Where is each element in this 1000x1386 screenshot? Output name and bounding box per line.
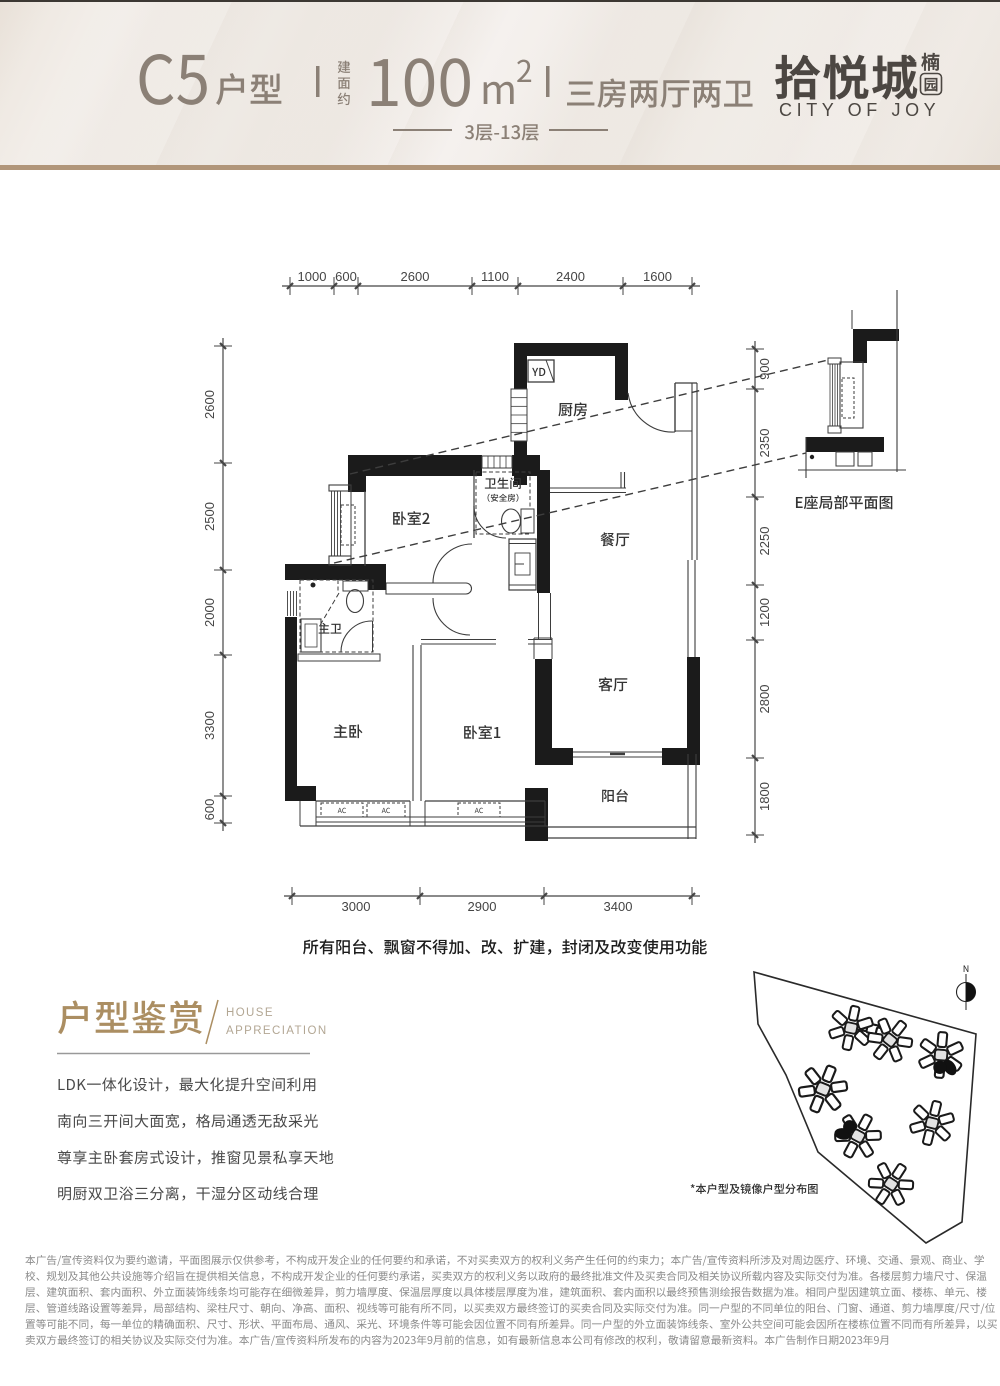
svg-text:约: 约 — [337, 88, 351, 108]
svg-text:1000: 1000 — [298, 269, 327, 284]
svg-text:LDK一体化设计，最大化提升空间利用: LDK一体化设计，最大化提升空间利用 — [57, 1074, 317, 1095]
svg-text:明厨双卫浴三分离，干湿分区动线合理: 明厨双卫浴三分离，干湿分区动线合理 — [57, 1183, 319, 1204]
svg-text:餐厅: 餐厅 — [600, 529, 630, 550]
svg-text:阳台: 阳台 — [601, 786, 629, 806]
svg-text:C5: C5 — [136, 27, 210, 124]
svg-text:主卧: 主卧 — [333, 721, 363, 742]
svg-text:2250: 2250 — [757, 527, 772, 556]
svg-text:E座局部平面图: E座局部平面图 — [794, 492, 893, 513]
svg-text:厨房: 厨房 — [558, 399, 588, 420]
svg-text:N: N — [963, 962, 970, 975]
svg-text:1800: 1800 — [757, 782, 772, 811]
svg-text:拾悦城: 拾悦城 — [774, 40, 918, 109]
svg-text:600: 600 — [202, 799, 217, 821]
svg-text:3300: 3300 — [202, 711, 217, 740]
svg-text:3层-13层: 3层-13层 — [464, 119, 539, 145]
svg-text:2400: 2400 — [556, 269, 585, 284]
svg-text:100: 100 — [366, 33, 473, 125]
svg-text:楠: 楠 — [921, 48, 940, 75]
svg-text:客厅: 客厅 — [598, 674, 628, 695]
svg-text:2600: 2600 — [202, 390, 217, 419]
svg-text:三房两厅两卫: 三房两厅两卫 — [565, 69, 754, 115]
svg-text:户型: 户型 — [215, 63, 283, 112]
svg-text:户型鉴赏: 户型鉴赏 — [57, 990, 205, 1042]
svg-text:2500: 2500 — [202, 502, 217, 531]
svg-text:1200: 1200 — [757, 598, 772, 627]
svg-text:YD: YD — [531, 364, 546, 380]
svg-text:APPRECIATION: APPRECIATION — [226, 1025, 328, 1037]
svg-text:南向三开间大面宽，格局通透无敌采光: 南向三开间大面宽，格局通透无敌采光 — [57, 1110, 319, 1131]
svg-text:HOUSE: HOUSE — [226, 1007, 274, 1019]
svg-text:2800: 2800 — [757, 685, 772, 714]
svg-text:3400: 3400 — [604, 899, 633, 914]
svg-text:尊享主卧套房式设计，推窗见景私享天地: 尊享主卧套房式设计，推窗见景私享天地 — [57, 1147, 334, 1168]
svg-text:卧室1: 卧室1 — [463, 722, 502, 743]
svg-text:2350: 2350 — [757, 429, 772, 458]
svg-text:（安全房）: （安全房） — [482, 492, 525, 504]
svg-text:AC: AC — [382, 806, 391, 816]
svg-text:2: 2 — [516, 47, 533, 91]
svg-text:AC: AC — [338, 806, 347, 816]
svg-text:AC: AC — [475, 806, 484, 816]
svg-text:园: 园 — [923, 74, 938, 95]
svg-text:2600: 2600 — [401, 269, 430, 284]
svg-text:CITY OF JOY: CITY OF JOY — [779, 100, 940, 120]
svg-text:卫生间: 卫生间 — [484, 473, 522, 492]
svg-text:2000: 2000 — [202, 598, 217, 627]
svg-text:主卫: 主卫 — [318, 620, 342, 637]
svg-text:m: m — [480, 58, 517, 116]
svg-text:*本户型及镜像户型分布图: *本户型及镜像户型分布图 — [690, 1181, 818, 1197]
svg-text:600: 600 — [335, 269, 357, 284]
svg-text:1100: 1100 — [481, 269, 509, 284]
svg-text:所有阳台、飘窗不得加、改、扩建，封闭及改变使用功能: 所有阳台、飘窗不得加、改、扩建，封闭及改变使用功能 — [303, 934, 708, 958]
svg-text:卧室2: 卧室2 — [392, 508, 431, 529]
svg-text:1600: 1600 — [643, 269, 672, 284]
svg-text:2900: 2900 — [468, 899, 497, 914]
svg-text:3000: 3000 — [342, 899, 371, 914]
